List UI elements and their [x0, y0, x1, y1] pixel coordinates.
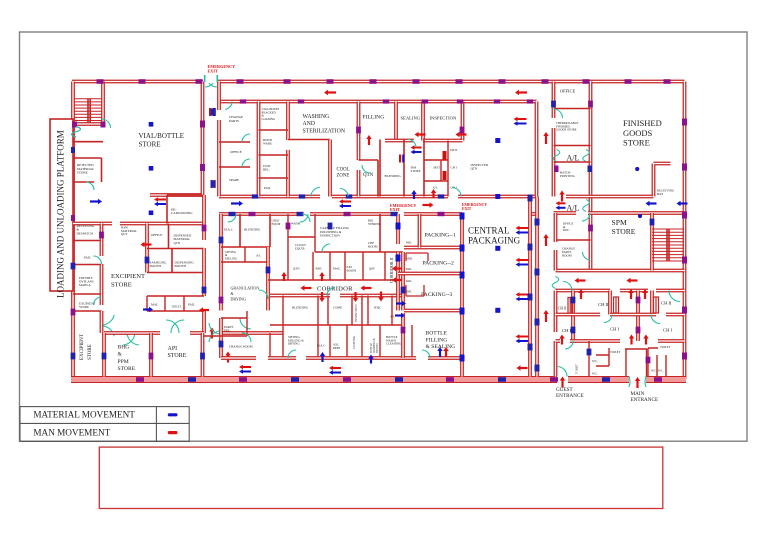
svg-text:PAIL: PAIL [406, 268, 412, 271]
svg-text:M.A.C.: M.A.C. [224, 228, 234, 232]
svg-text:CH I: CH I [451, 166, 457, 170]
svg-text:QUT: QUT [121, 232, 128, 236]
svg-text:TOILET: TOILET [172, 306, 182, 309]
svg-text:CH I: CH I [610, 327, 620, 332]
svg-text:MST: MST [434, 166, 441, 170]
svg-text:PACKING--2: PACKING--2 [423, 260, 455, 266]
svg-text:BOTTLE: BOTTLE [426, 331, 448, 337]
svg-text:EXIT: EXIT [390, 207, 400, 212]
svg-text:W.C.: W.C. [592, 359, 598, 363]
svg-text:A/L: A/L [390, 315, 395, 319]
svg-text:CORRIDOR II: CORRIDOR II [389, 257, 394, 283]
svg-text:OFFICE: OFFICE [560, 89, 575, 94]
svg-text:API: API [168, 346, 178, 352]
svg-text:TOILET: TOILET [576, 364, 579, 374]
svg-text:GOODS: GOODS [623, 128, 653, 138]
svg-text:STORE: STORE [118, 366, 136, 372]
svg-text:W.C.: W.C. [592, 372, 598, 376]
svg-text:RECEIVING: RECEIVING [77, 224, 95, 228]
svg-text:CH I: CH I [562, 328, 572, 333]
svg-text:GUEST: GUEST [556, 387, 574, 393]
svg-text:MAC.: MAC. [333, 267, 341, 271]
svg-text:WASHING: WASHING [303, 114, 330, 120]
svg-text:IPQC: IPQC [374, 306, 381, 310]
svg-text:PRE.: PRE. [224, 329, 231, 333]
svg-text:A/L: A/L [256, 254, 261, 258]
svg-text:INSPECTION: INSPECTION [354, 304, 358, 322]
svg-text:BLENDING: BLENDING [244, 228, 261, 232]
svg-text:QTN: QTN [363, 173, 374, 178]
svg-text:STORE: STORE [623, 138, 650, 148]
svg-text:ENTRANCE: ENTRANCE [631, 397, 659, 403]
svg-text:PAIL: PAIL [264, 186, 271, 190]
svg-text:MILLING: MILLING [225, 257, 237, 261]
svg-text:STERING: STERING [368, 222, 382, 226]
svg-text:PRINTING: PRINTING [560, 174, 576, 178]
svg-text:STERILIZATION: STERILIZATION [303, 128, 346, 134]
svg-text:BEL.: BEL. [263, 168, 270, 172]
svg-text:VIAL/BOTTLE: VIAL/BOTTLE [139, 132, 185, 140]
svg-text:DRYING: DRYING [288, 342, 300, 346]
svg-text:PAIL: PAIL [188, 303, 195, 307]
svg-text:LOADING AND UNLOADING PLATFORM: LOADING AND UNLOADING PLATFORM [56, 130, 66, 298]
svg-text:OFFICE: OFFICE [230, 150, 242, 154]
svg-text:INSPECTION: INSPECTION [430, 116, 457, 121]
svg-text:CH II: CH II [661, 301, 672, 306]
svg-text:SPARE: SPARE [229, 178, 239, 182]
svg-text:PACKING--1: PACKING--1 [425, 233, 457, 239]
svg-text:SPM: SPM [612, 218, 627, 227]
svg-text:MATERIAL MOVEMENT: MATERIAL MOVEMENT [33, 410, 135, 420]
svg-text:TOILET: TOILET [660, 345, 671, 349]
svg-text:COATING: COATING [352, 335, 356, 349]
svg-text:STORE: STORE [111, 282, 132, 289]
svg-text:MAN MOVEMENT: MAN MOVEMENT [33, 427, 110, 437]
svg-text:ROOM: ROOM [347, 269, 357, 273]
svg-text:STORE: STORE [77, 171, 88, 175]
svg-text:FINISHED: FINISHED [623, 118, 662, 128]
svg-text:DRYING: DRYING [231, 296, 246, 301]
svg-text:ZONE: ZONE [337, 173, 350, 178]
svg-text:CH II: CH II [598, 302, 609, 307]
svg-text:MAIN: MAIN [631, 391, 645, 397]
svg-text:EQUIP: EQUIP [272, 222, 281, 226]
svg-text:CORRIDOR: CORRIDOR [317, 285, 353, 292]
svg-text:COMP.: COMP. [333, 306, 343, 310]
svg-text:DESPATCH: DESPATCH [77, 231, 94, 235]
svg-text:STORE: STORE [168, 353, 187, 359]
svg-text:EXIT: EXIT [462, 207, 472, 211]
svg-text:QTN: QTN [471, 167, 478, 171]
svg-text:SEALING: SEALING [401, 116, 421, 121]
svg-text:OFFICE: OFFICE [151, 233, 162, 237]
svg-text:EXCIPIENT: EXCIPIENT [80, 334, 85, 360]
svg-text:BHG: BHG [118, 345, 130, 351]
svg-text:EXCIPIENT: EXCIPIENT [111, 273, 145, 280]
svg-text:STORE: STORE [612, 227, 636, 236]
svg-text:GRANULATION: GRANULATION [231, 286, 260, 291]
svg-text:QSF: QSF [369, 267, 375, 271]
svg-text:PAIL: PAIL [406, 242, 412, 245]
svg-text:AND: AND [303, 121, 316, 127]
svg-text:ROOM: ROOM [368, 245, 378, 249]
svg-text:CHANGE ROOM: CHANGE ROOM [229, 345, 253, 349]
svg-text:FILLING: FILLING [426, 337, 448, 343]
svg-text:BOOTH: BOOTH [150, 264, 162, 268]
svg-text:WASH: WASH [291, 222, 301, 226]
svg-text:BOOTH: BOOTH [175, 264, 187, 268]
svg-text:LOADING: LOADING [262, 117, 276, 121]
svg-text:MAHLA: MAHLA [79, 283, 91, 287]
svg-text:MML: MML [406, 258, 413, 261]
svg-text:ENTRANCE: ENTRANCE [556, 393, 584, 399]
svg-text:PAIL: PAIL [84, 256, 91, 260]
svg-text:QTN: QTN [174, 241, 181, 245]
svg-text:CH II: CH II [558, 307, 567, 311]
svg-text:STORE: STORE [79, 305, 89, 309]
svg-text:INSPECTION: INSPECTION [320, 234, 340, 238]
svg-text:PAIL: PAIL [406, 280, 412, 283]
svg-text:WARE: WARE [263, 142, 272, 146]
svg-text:PREP: PREP [333, 346, 341, 350]
svg-text:STORE: STORE [88, 344, 93, 360]
svg-text:GOODS STORE: GOODS STORE [556, 128, 577, 132]
svg-text:STORE: STORE [411, 169, 421, 173]
svg-text:BLENDING: BLENDING [385, 174, 402, 178]
svg-text:MAL: MAL [151, 303, 158, 307]
svg-text:W.C. W.C.: W.C. W.C. [651, 369, 664, 373]
svg-text:COOL: COOL [337, 168, 350, 173]
svg-text:PAIL: PAIL [316, 267, 323, 271]
svg-text:ROOM: ROOM [562, 254, 572, 258]
svg-text:PARTS: PARTS [229, 119, 239, 123]
svg-text:BLENDING: BLENDING [292, 306, 309, 310]
svg-text:PPM: PPM [118, 359, 129, 365]
svg-text:A/L: A/L [433, 186, 438, 190]
svg-text:FILLING: FILLING [363, 115, 385, 121]
svg-text:CH II: CH II [450, 148, 457, 152]
svg-text:QTN: QTN [293, 267, 300, 271]
svg-text:M.A.C: M.A.C [317, 344, 325, 348]
svg-text:TOILET: TOILET [610, 350, 621, 354]
svg-text:A/L: A/L [567, 154, 580, 163]
svg-text:&: & [118, 352, 123, 358]
svg-text:BAY: BAY [657, 192, 664, 196]
svg-text:CH I: CH I [663, 328, 673, 333]
svg-text:CENTRAL: CENTRAL [468, 226, 510, 236]
svg-text:EXIT: EXIT [208, 68, 218, 73]
svg-text:PACKAGING: PACKAGING [468, 236, 521, 246]
svg-text:DOC: DOC [563, 228, 569, 232]
svg-text:EQUIP.: EQUIP. [295, 247, 305, 251]
svg-text:PACKING--3: PACKING--3 [421, 292, 453, 298]
svg-text:CLEANING: CLEANING [386, 342, 402, 346]
svg-text:DRYING: DRYING [376, 343, 379, 353]
svg-text:CARTOONING: CARTOONING [171, 211, 193, 215]
svg-text:STORE: STORE [139, 140, 161, 148]
